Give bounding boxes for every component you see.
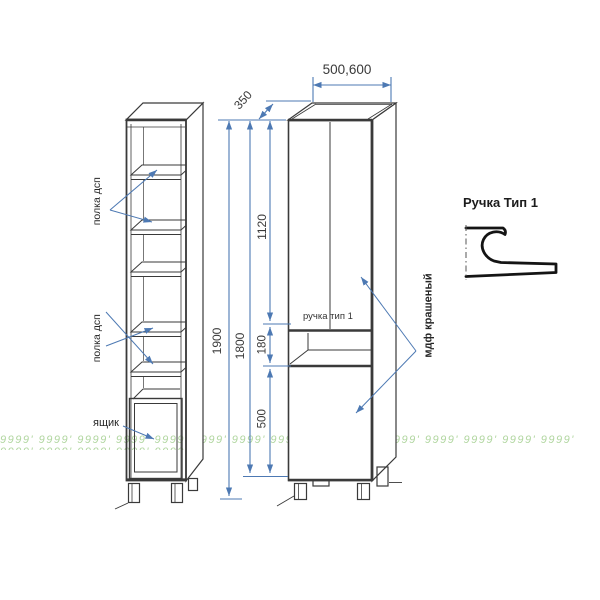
cabinet-front-drawing — [277, 103, 402, 506]
handle-profile-drawing — [466, 225, 556, 280]
dim-niche-value: 180 — [257, 331, 269, 359]
dim-top-width-value: 500,600 — [307, 63, 387, 77]
dim-depth-line — [259, 104, 273, 119]
dim-lower-door-value: 500 — [257, 405, 269, 433]
handle-detail-title: Ручка Тип 1 — [463, 196, 538, 209]
drawer-box — [130, 389, 183, 479]
dim-body-height-value: 1800 — [234, 329, 246, 363]
leader-drawer — [123, 426, 154, 439]
label-shelf-lower: полка дсп — [92, 307, 103, 369]
legs — [115, 479, 198, 510]
shelves — [131, 165, 192, 377]
label-drawer: ящик — [93, 418, 119, 429]
dim-overall-height-value: 1900 — [211, 324, 223, 358]
label-material: мдф крашеный — [424, 270, 435, 362]
dim-upper-door-value: 1120 — [256, 210, 268, 244]
leader-shelf-upper — [110, 170, 157, 222]
technical-drawing-canvas — [0, 0, 600, 600]
label-handle-type: ручка тип 1 — [303, 312, 353, 322]
furniture-drawing-page: 9999' 9999' 9999' 9999' 9999' 9999' 9999… — [0, 0, 600, 600]
shelf-unit-drawing — [115, 103, 203, 509]
leader-shelf-lower — [106, 312, 153, 364]
label-shelf-upper: полка дсп — [92, 170, 103, 232]
